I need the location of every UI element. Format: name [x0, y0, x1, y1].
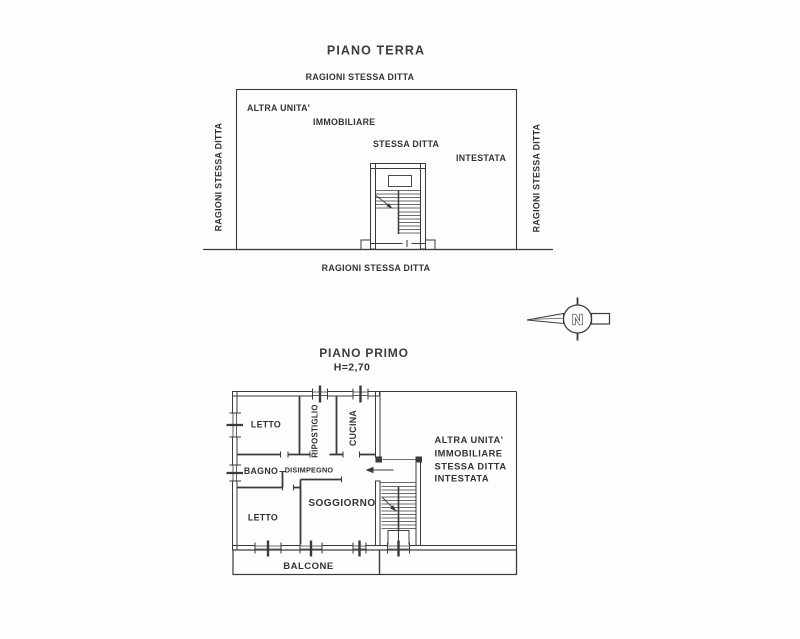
first-floor-plan: PIANO PRIMO H=2,70 [227, 346, 517, 575]
room-label-disimpegno: DISIMPEGNO [285, 466, 334, 475]
ground-floor-plan: PIANO TERRA RAGIONI STESSA DITTA ALTRA U… [203, 44, 553, 274]
window-bottom-1 [255, 541, 281, 557]
room-label-bagno: BAGNO [244, 466, 278, 476]
adjacent-label-stessa-ditta: STESSA DITTA [435, 462, 507, 472]
boundary-label-top: RAGIONI STESSA DITTA [306, 72, 415, 82]
window-top-1 [313, 386, 328, 403]
room-label-balcone: BALCONE [283, 561, 333, 572]
ground-floor-title: PIANO TERRA [327, 44, 425, 58]
first-floor-stairwell [381, 483, 417, 546]
north-compass-icon: N [527, 298, 610, 341]
stair-steps-lower [399, 212, 421, 233]
floor-plan-drawing: PIANO TERRA RAGIONI STESSA DITTA ALTRA U… [0, 0, 800, 639]
ground-floor-stairwell [361, 164, 435, 250]
first-floor-title: PIANO PRIMO [319, 346, 408, 360]
ground-label-altra-unita: ALTRA UNITA' [247, 103, 310, 113]
window-top-2 [353, 386, 368, 403]
stair-landing [389, 176, 412, 187]
window-left-2 [227, 465, 244, 481]
ground-label-intestata: INTESTATA [456, 153, 506, 163]
adjacent-label-altra-unita: ALTRA UNITA' [435, 435, 504, 445]
landing-post-left [376, 457, 383, 463]
landing-post-right [416, 457, 423, 463]
ground-floor-outline [237, 90, 517, 250]
room-label-soggiorno: SOGGIORNO [308, 498, 375, 509]
room-label-ripostiglio: RIPOSTIGLIO [311, 404, 320, 458]
window-bottom-2 [300, 541, 322, 557]
room-label-letto-bottom: LETTO [248, 513, 278, 523]
entrance-arrow-icon [366, 467, 394, 473]
window-bottom-4 [388, 541, 410, 557]
boundary-label-left: RAGIONI STESSA DITTA [214, 122, 224, 231]
adjacent-label-intestata: INTESTATA [435, 474, 490, 484]
boundary-label-bottom: RAGIONI STESSA DITTA [322, 263, 431, 273]
ground-label-stessa-ditta: STESSA DITTA [373, 139, 440, 149]
compass-north-letter: N [572, 312, 583, 329]
first-floor-height-label: H=2,70 [334, 362, 371, 374]
balcony-outline [233, 550, 517, 575]
ground-label-immobiliare: IMMOBILIARE [313, 117, 375, 127]
floor-plan-document: PIANO TERRA RAGIONI STESSA DITTA ALTRA U… [0, 0, 800, 639]
room-label-letto-top: LETTO [251, 420, 281, 430]
room-label-cucina: CUCINA [348, 410, 358, 446]
window-bottom-3 [353, 541, 366, 557]
adjacent-label-immobiliare: IMMOBILIARE [435, 449, 503, 459]
boundary-label-right: RAGIONI STESSA DITTA [532, 123, 542, 232]
balcony: BALCONE [233, 550, 517, 575]
window-left-1 [227, 413, 244, 437]
compass-tail-box [592, 314, 610, 325]
